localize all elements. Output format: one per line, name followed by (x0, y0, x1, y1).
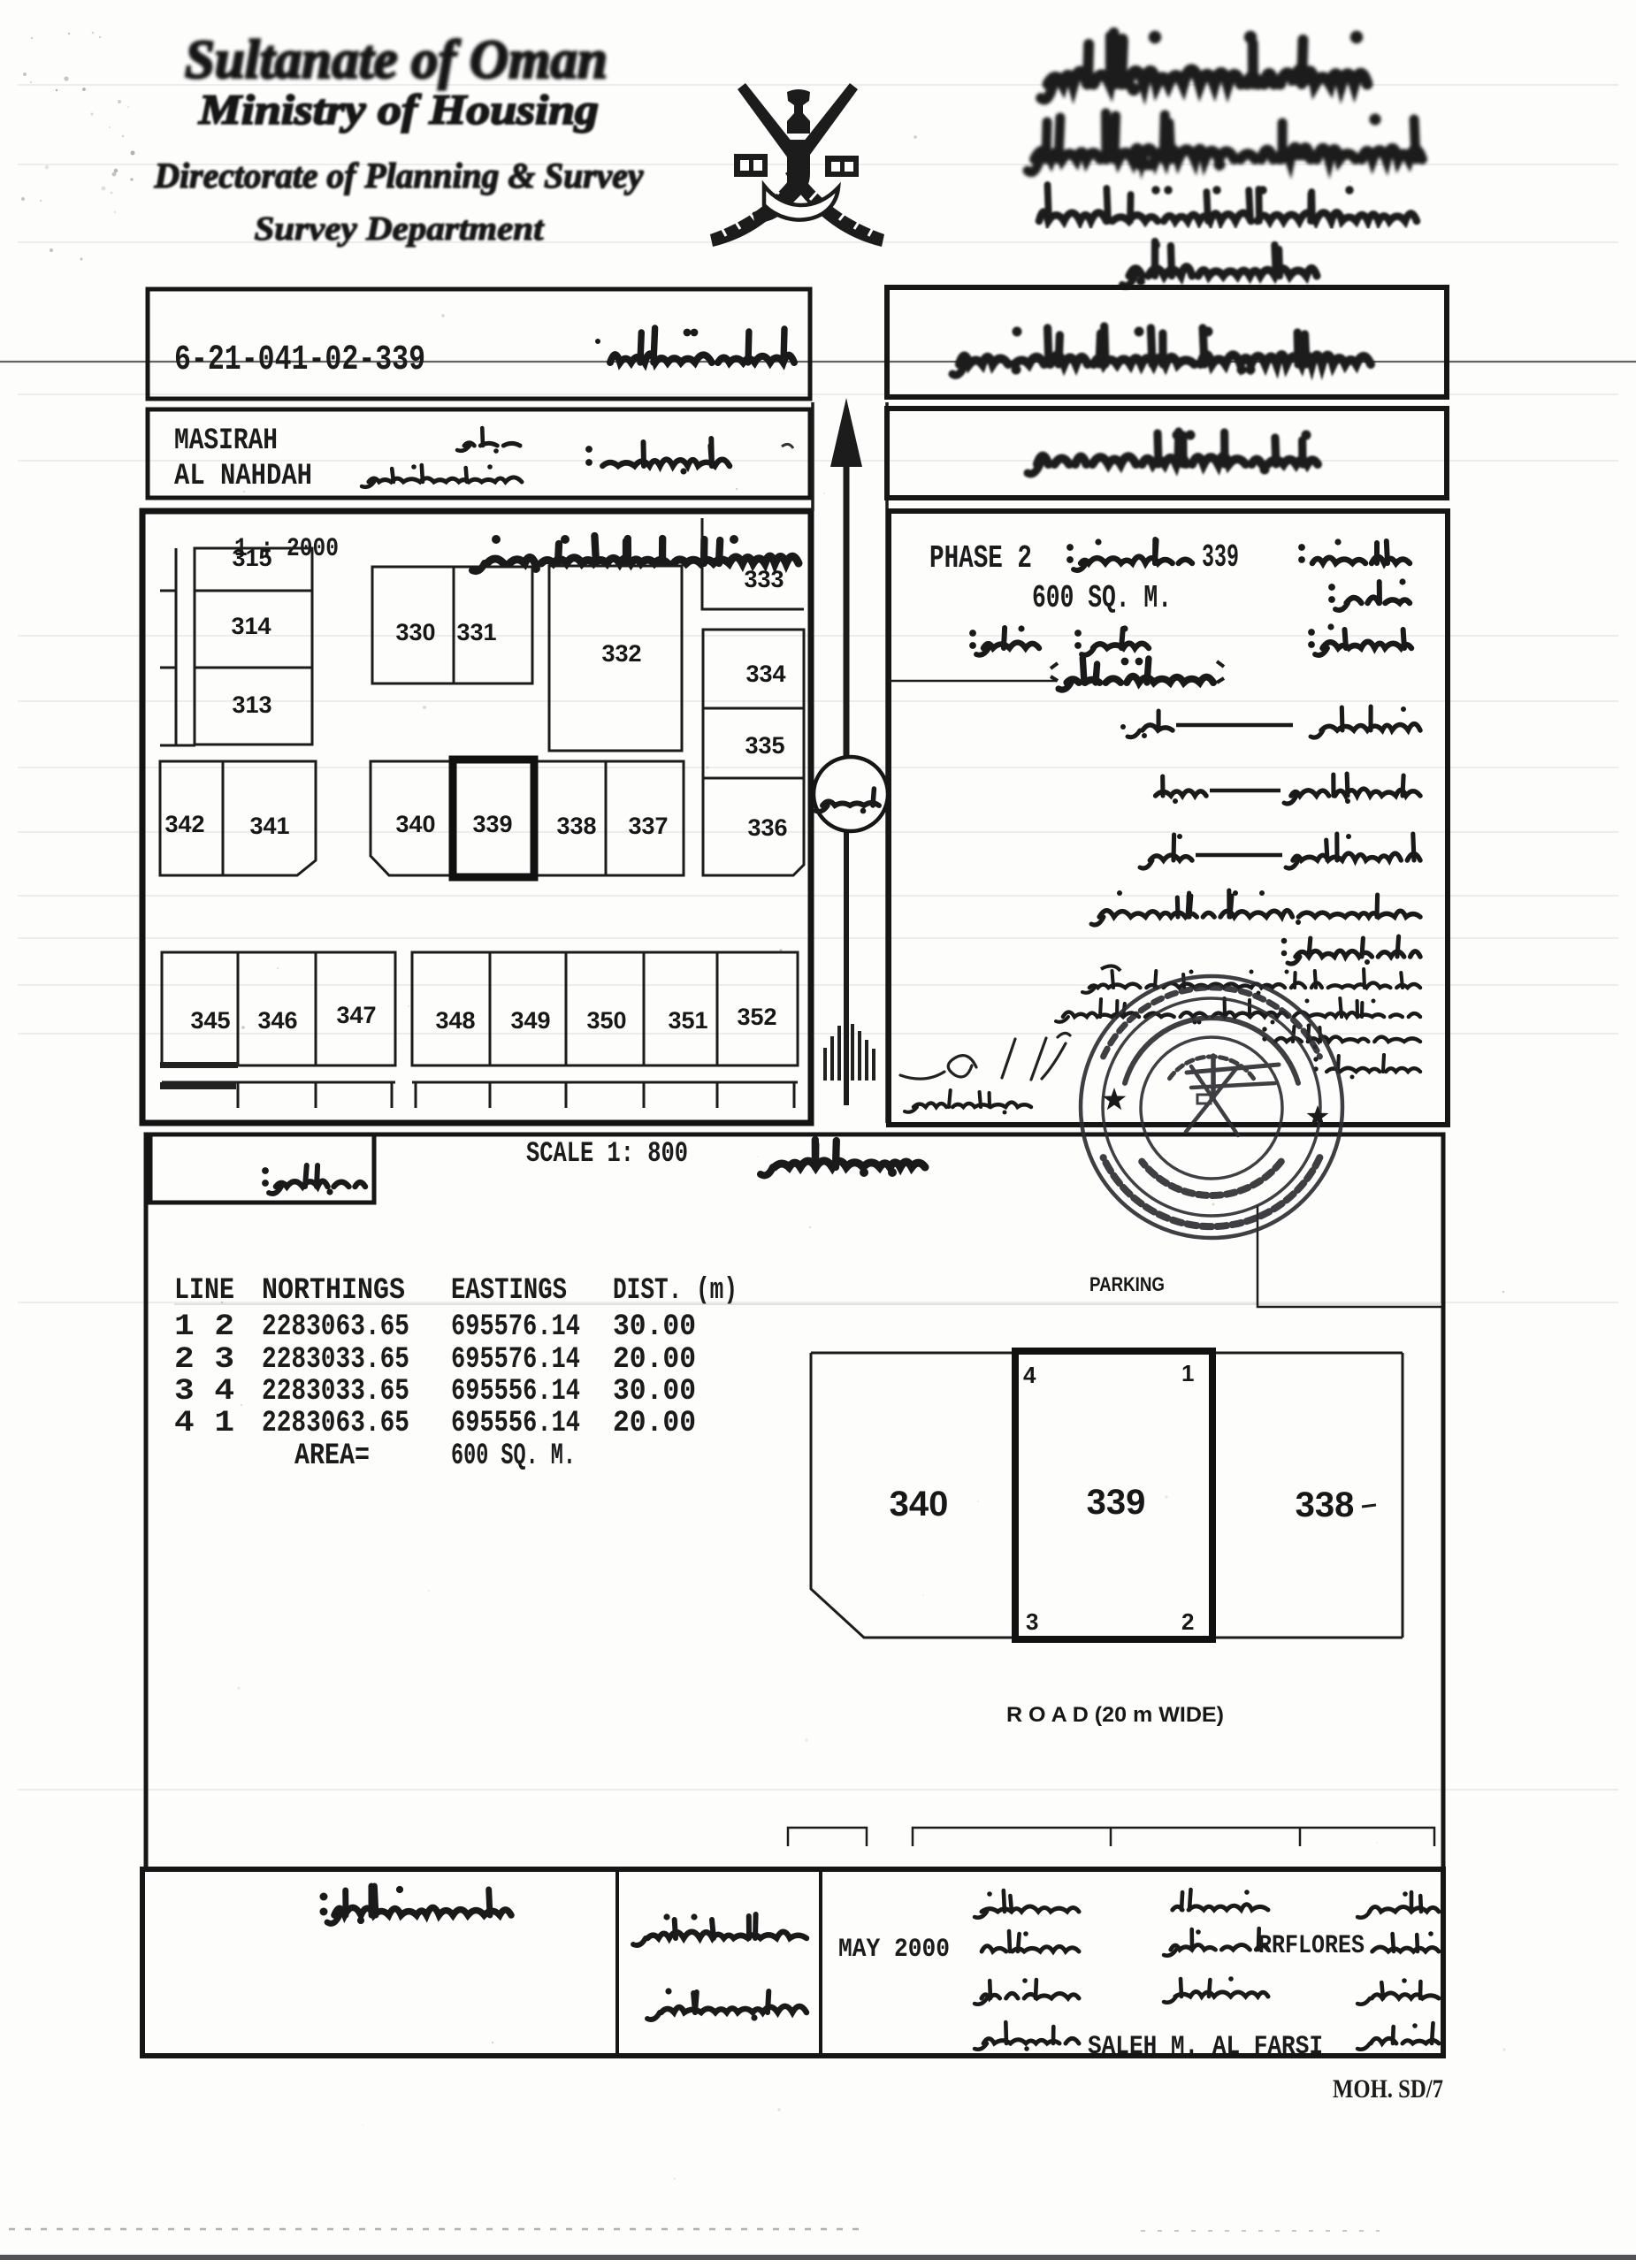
svg-text:347: 347 (336, 1002, 376, 1028)
svg-text:2: 2 (1181, 1608, 1194, 1635)
svg-text:349: 349 (510, 1007, 550, 1034)
svg-text:348: 348 (435, 1007, 475, 1034)
svg-text:1: 1 (1181, 1360, 1194, 1386)
svg-text:695556.14: 695556.14 (451, 1407, 580, 1440)
svg-text:352: 352 (737, 1004, 776, 1030)
svg-text:3: 3 (1026, 1608, 1038, 1635)
svg-text:338: 338 (1296, 1485, 1355, 1524)
svg-text:345: 345 (190, 1007, 230, 1034)
svg-text:600 SQ. M.: 600 SQ. M. (1032, 580, 1172, 616)
svg-text:2283063.65: 2283063.65 (262, 1310, 409, 1344)
svg-text:DIST. (m): DIST. (m) (613, 1274, 738, 1308)
svg-text:30.00: 30.00 (613, 1310, 696, 1344)
svg-text:340: 340 (395, 811, 435, 837)
svg-text:351: 351 (668, 1007, 707, 1034)
svg-text:2 3: 2 3 (174, 1343, 234, 1377)
svg-text:4: 4 (1023, 1362, 1036, 1388)
svg-text:315: 315 (232, 545, 271, 571)
svg-text:R O A D (20 m WIDE): R O A D (20 m WIDE) (1006, 1703, 1224, 1727)
svg-text:NORTHINGS: NORTHINGS (262, 1274, 405, 1308)
svg-text:2283033.65: 2283033.65 (262, 1343, 409, 1377)
svg-text:350: 350 (586, 1007, 626, 1034)
svg-text:20.00: 20.00 (613, 1343, 696, 1377)
svg-text:Survey Department: Survey Department (255, 210, 546, 248)
svg-text:695556.14: 695556.14 (451, 1375, 580, 1409)
svg-text:3 4: 3 4 (174, 1375, 234, 1409)
svg-text:2283033.65: 2283033.65 (262, 1375, 409, 1409)
svg-text:341: 341 (249, 813, 289, 839)
svg-text:4 1: 4 1 (174, 1407, 234, 1440)
svg-text:334: 334 (745, 661, 785, 687)
svg-text:313: 313 (232, 691, 271, 718)
svg-text:MAY 2000: MAY 2000 (838, 1935, 950, 1965)
svg-text:LINE: LINE (174, 1274, 234, 1308)
svg-text:339: 339 (1087, 1483, 1146, 1522)
svg-text:330: 330 (395, 619, 435, 645)
svg-text:340: 340 (890, 1485, 949, 1523)
svg-text:PARKING: PARKING (1089, 1273, 1165, 1295)
svg-text:337: 337 (628, 813, 668, 839)
svg-text:600 SQ. M.: 600 SQ. M. (451, 1439, 576, 1473)
svg-text:338: 338 (556, 813, 596, 839)
svg-text:1 2: 1 2 (174, 1310, 234, 1344)
svg-text:Ministry of Housing: Ministry of Housing (198, 87, 599, 134)
svg-text:342: 342 (164, 811, 204, 837)
svg-text:AREA=: AREA= (294, 1439, 370, 1473)
svg-text:314: 314 (231, 613, 271, 639)
svg-text:30.00: 30.00 (613, 1375, 696, 1409)
svg-text:6-21-041-02-339: 6-21-041-02-339 (174, 340, 425, 380)
svg-text:695576.14: 695576.14 (451, 1310, 580, 1344)
svg-text:PHASE 2: PHASE 2 (929, 540, 1032, 577)
svg-text:332: 332 (601, 640, 641, 667)
svg-text:Directorate of Planning & Surv: Directorate of Planning & Survey (154, 156, 644, 195)
svg-text:EASTINGS: EASTINGS (451, 1274, 567, 1308)
svg-text:2283063.65: 2283063.65 (262, 1407, 409, 1440)
svg-text:336: 336 (747, 814, 787, 841)
svg-text:346: 346 (257, 1007, 297, 1034)
svg-text:20.00: 20.00 (613, 1407, 696, 1440)
svg-text:695576.14: 695576.14 (451, 1343, 580, 1377)
svg-text:331: 331 (456, 619, 496, 645)
svg-text:335: 335 (745, 732, 784, 759)
svg-text:MASIRAH: MASIRAH (174, 424, 278, 458)
svg-text:AL NAHDAH: AL NAHDAH (174, 460, 312, 493)
svg-text:SALEH M. AL FARSI: SALEH M. AL FARSI (1088, 2032, 1323, 2062)
svg-text:SCALE 1: 800: SCALE 1: 800 (526, 1137, 688, 1170)
svg-text:RRFLORES: RRFLORES (1258, 1931, 1365, 1961)
svg-text:339: 339 (1202, 539, 1239, 576)
svg-text:339: 339 (472, 811, 512, 837)
svg-text:MOH. SD/7: MOH. SD/7 (1333, 2074, 1443, 2104)
svg-text:333: 333 (744, 566, 784, 592)
svg-text:Sultanate of Oman: Sultanate of Oman (185, 30, 608, 90)
